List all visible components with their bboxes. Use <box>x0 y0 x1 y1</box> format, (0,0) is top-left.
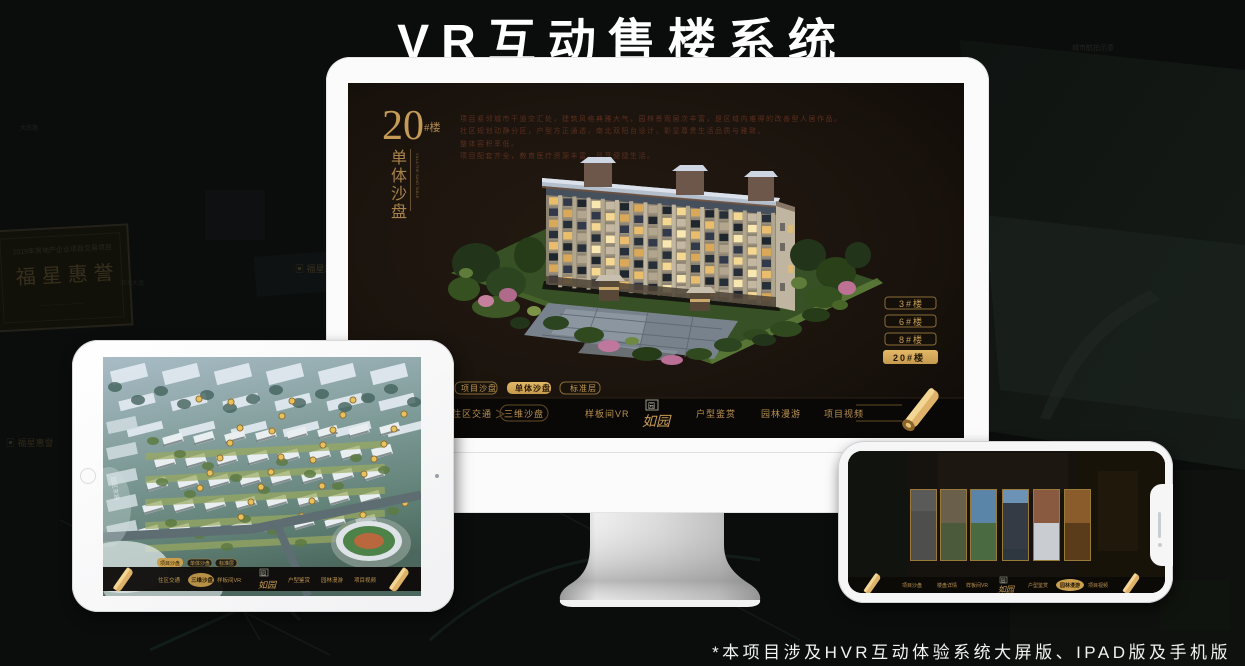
svg-text:户型鉴赏: 户型鉴赏 <box>1028 582 1048 589</box>
svg-text:项目沙盘: 项目沙盘 <box>461 383 497 393</box>
svg-text:大庆路: 大庆路 <box>20 124 38 132</box>
svg-text:项目紧邻城市干道交汇处，建筑风格典雅大气，园林景观层次丰富，: 项目紧邻城市干道交汇处，建筑风格典雅大气，园林景观层次丰富，是区域内难得的改善型… <box>460 114 843 123</box>
svg-text:20: 20 <box>382 103 424 149</box>
svg-text:项目视频: 项目视频 <box>1088 582 1108 589</box>
svg-text:项目视频: 项目视频 <box>354 576 377 584</box>
svg-text:园林漫游: 园林漫游 <box>321 576 344 584</box>
svg-text:▣ 福星惠誉: ▣ 福星惠誉 <box>6 437 54 448</box>
svg-text:#楼: #楼 <box>424 120 441 134</box>
svg-text:样板间VR: 样板间VR <box>966 582 988 589</box>
svg-text:如园: 如园 <box>998 585 1015 593</box>
svg-text:20#楼: 20#楼 <box>893 352 925 363</box>
svg-text:园林漫游: 园林漫游 <box>1060 582 1080 589</box>
svg-text:户型鉴赏: 户型鉴赏 <box>696 408 736 419</box>
svg-text:单体沙盘: 单体沙盘 <box>515 383 551 393</box>
svg-text:户型鉴赏: 户型鉴赏 <box>288 576 311 584</box>
svg-text:单体沙盘: 单体沙盘 <box>190 560 210 567</box>
svg-text:如园: 如园 <box>258 580 278 590</box>
svg-text:滨海大道: 滨海大道 <box>120 279 144 287</box>
svg-text:三维沙盘: 三维沙盘 <box>504 408 544 419</box>
svg-text:园林漫游: 园林漫游 <box>761 408 801 419</box>
svg-text:标准层: 标准层 <box>570 383 597 393</box>
svg-text:项目视频: 项目视频 <box>824 408 864 419</box>
svg-text:如园: 如园 <box>642 414 672 430</box>
svg-text:项目沙盘: 项目沙盘 <box>160 560 180 567</box>
svg-text:标准层: 标准层 <box>219 560 234 567</box>
svg-text:3#楼: 3#楼 <box>899 298 924 309</box>
svg-text:园: 园 <box>648 402 655 410</box>
svg-text:项目沙盘: 项目沙盘 <box>902 582 922 589</box>
svg-text:社区规划动静分区，户型方正通透，南北双阳台设计，彰显尊贵生活: 社区规划动静分区，户型方正通透，南北双阳台设计，彰显尊贵生活品质与雅致。 <box>460 126 766 135</box>
svg-text:楼盘详情: 楼盘详情 <box>937 582 957 589</box>
svg-text:住区交通: 住区交通 <box>158 576 181 584</box>
svg-text:8#楼: 8#楼 <box>899 334 924 345</box>
svg-text:样板间VR: 样板间VR <box>585 408 630 419</box>
svg-text:盘: 盘 <box>391 202 407 221</box>
svg-text:体: 体 <box>391 167 407 185</box>
svg-text:单: 单 <box>391 149 407 167</box>
svg-text:样板间VR: 样板间VR <box>217 576 241 584</box>
svg-text:6#楼: 6#楼 <box>899 316 924 327</box>
svg-text:园: 园 <box>261 571 266 577</box>
svg-text:项目配套齐全，教育医疗资源丰富，尽享便捷生活。: 项目配套齐全，教育医疗资源丰富，尽享便捷生活。 <box>460 151 656 160</box>
svg-text:整体容积率低。: 整体容积率低。 <box>460 139 520 148</box>
svg-text:VILLA THE SAND TABLE: VILLA THE SAND TABLE <box>415 153 420 199</box>
svg-text:三维沙盘: 三维沙盘 <box>191 576 214 584</box>
svg-text:住区交通: 住区交通 <box>452 408 492 419</box>
svg-text:沙: 沙 <box>391 186 407 203</box>
